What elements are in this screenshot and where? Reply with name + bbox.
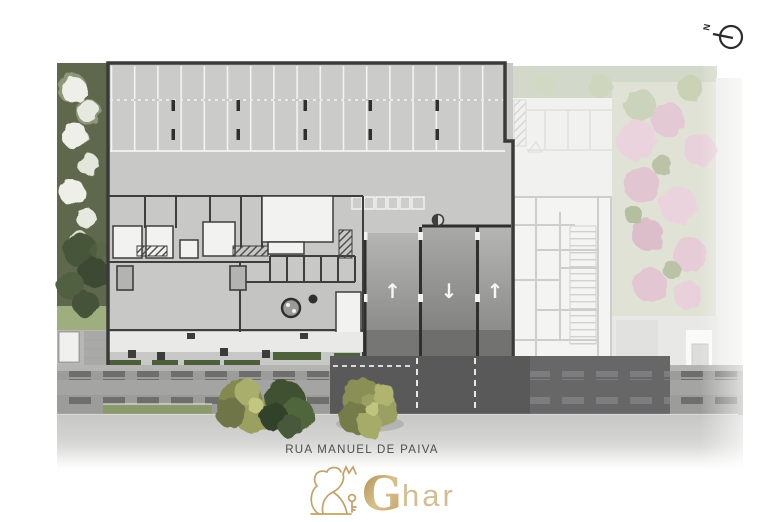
- asphalt-apron-light: [530, 356, 670, 414]
- lobby-planter-pot: [309, 295, 318, 304]
- street-name-label: RUA MANUEL DE PAIVA: [285, 444, 439, 456]
- site-plan-page: ↑ ↓ ↑: [0, 0, 768, 522]
- logo-text: har: [402, 478, 456, 513]
- drive-lanes: ↑ ↓ ↑: [363, 215, 512, 366]
- stairs-hatch: [137, 246, 167, 256]
- left-garden: [57, 63, 108, 368]
- lobby-table-seat: [286, 303, 290, 307]
- edge-fade: [700, 0, 768, 522]
- stairs-hatch: [339, 230, 352, 258]
- neighbor-stair: [570, 226, 596, 344]
- neighbor-ramp-hatch: [514, 100, 526, 146]
- grass-verge: [103, 404, 212, 414]
- down-arrow-icon: ↓: [441, 279, 458, 303]
- up-arrow-icon: ↑: [487, 279, 504, 303]
- garden-structure: [59, 332, 79, 362]
- main-building: ↑ ↓ ↑: [107, 63, 513, 369]
- storefront-band: [108, 332, 363, 352]
- parking-stall-lines: [110, 66, 505, 99]
- neighbor-upper-slab: [513, 98, 612, 196]
- lobby-table: [282, 299, 300, 317]
- logo-initial: G: [362, 467, 402, 522]
- apron-pavers: [530, 395, 670, 404]
- site-plan-canvas: ↑ ↓ ↑: [0, 0, 768, 522]
- up-arrow-icon: ↑: [384, 279, 401, 303]
- parking-area: [110, 66, 505, 151]
- apron-pavers: [530, 371, 670, 380]
- parking-stall-lines: [110, 101, 505, 151]
- lobby-table-seat: [292, 309, 296, 313]
- stairs-hatch: [233, 246, 268, 256]
